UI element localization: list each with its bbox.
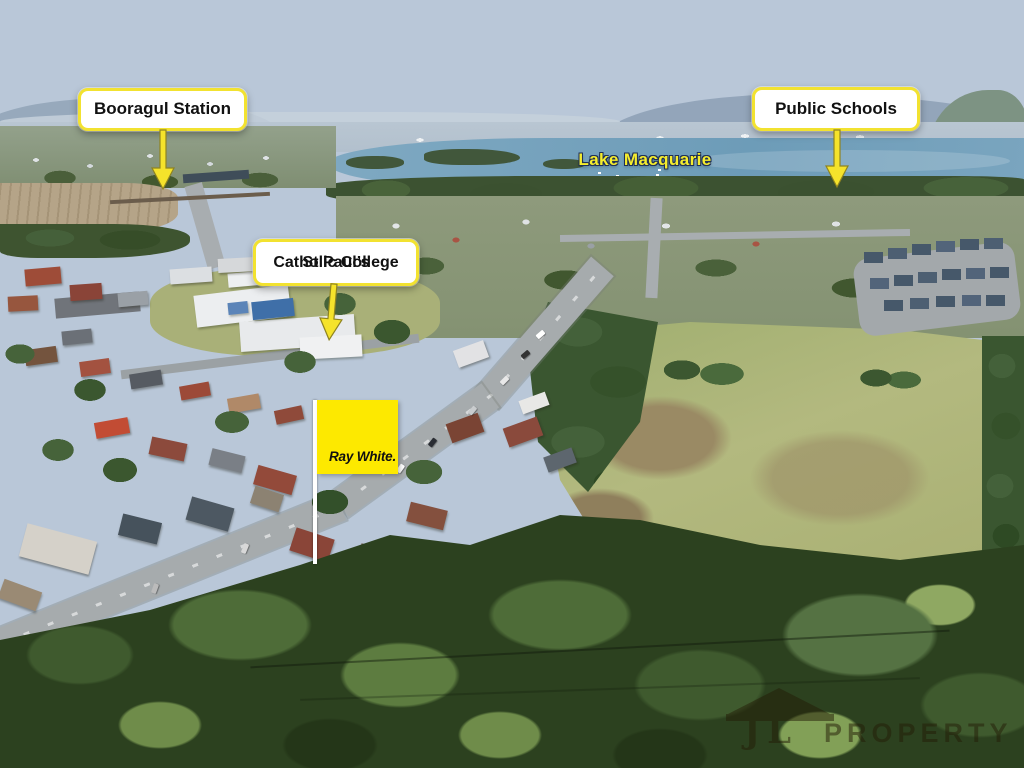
- arrow-down-icon: [316, 283, 347, 342]
- house-roof: [149, 436, 188, 461]
- arrow-down-icon: [150, 130, 176, 190]
- tree-strip: [982, 336, 1024, 562]
- house-roof: [24, 346, 58, 366]
- boats: [598, 172, 601, 174]
- watermark-word: PROPERTY: [824, 718, 1013, 749]
- watermark-initials: JL: [744, 712, 798, 752]
- house-roof: [503, 416, 544, 447]
- house-roof: [179, 382, 211, 401]
- house-roof: [406, 502, 448, 531]
- shade-sail: [227, 301, 248, 315]
- house-roof: [208, 448, 245, 473]
- house-roof: [218, 257, 257, 273]
- callout-label: Booragul Station: [94, 99, 231, 120]
- house-roof-icon: [728, 688, 830, 714]
- house-roof: [170, 267, 213, 285]
- house-roof: [8, 295, 39, 312]
- house-roof: [118, 513, 162, 544]
- house-roof: [117, 291, 148, 308]
- house-roof: [79, 358, 111, 377]
- ray-white-logo: Ray White.: [329, 449, 396, 464]
- house-roof: [186, 496, 235, 531]
- tree-clump: [652, 348, 764, 396]
- callout-st-pauls-college: St Paul’s Catholic College: [253, 239, 419, 286]
- lake-island: [424, 149, 520, 165]
- callout-booragul-station: Booragul Station: [78, 88, 247, 131]
- house-roof: [61, 328, 92, 345]
- callout-label-line2: Catholic College: [273, 253, 398, 273]
- tree-clump: [852, 358, 928, 398]
- estate-houses: [864, 252, 883, 263]
- house-roof: [69, 283, 102, 301]
- house-roof: [0, 579, 42, 611]
- callout-label: Public Schools: [775, 99, 897, 120]
- house-roof: [274, 405, 304, 425]
- lake-macquarie-label: Lake Macquarie: [558, 150, 732, 170]
- house-roof: [94, 417, 130, 439]
- water-highlight: [690, 150, 1010, 172]
- house-roof: [24, 266, 61, 286]
- ray-white-flag: Ray White.: [317, 400, 398, 474]
- house-roof: [227, 393, 261, 413]
- aerial-photo: Booragul Station Public Schools St Paul’…: [0, 0, 1024, 768]
- lake-island: [346, 156, 404, 169]
- house-roof: [453, 340, 489, 368]
- house-roof: [19, 523, 97, 574]
- arrow-down-icon: [824, 130, 850, 188]
- callout-public-schools: Public Schools: [752, 87, 920, 131]
- jl-property-watermark: JL PROPERTY: [726, 684, 1018, 768]
- tree-band: [0, 224, 190, 258]
